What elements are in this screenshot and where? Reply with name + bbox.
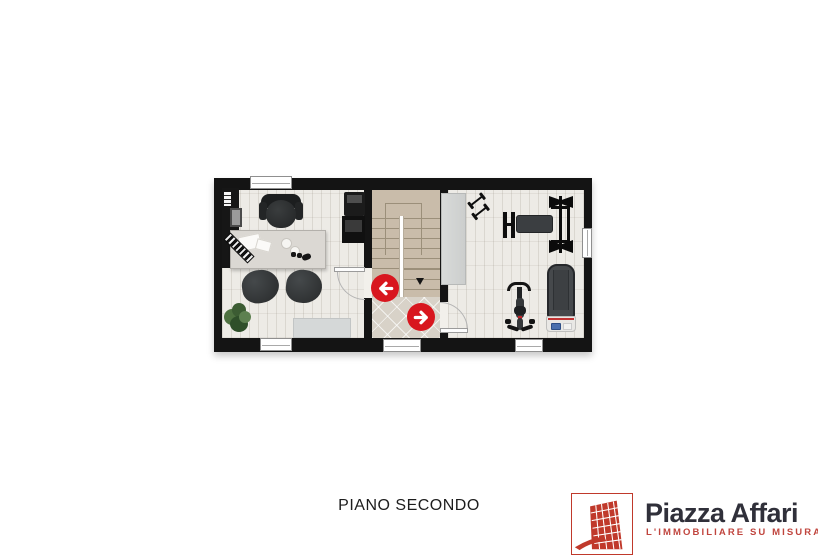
arrow-left-icon (376, 279, 395, 298)
window-top-office (250, 176, 292, 189)
picture-frame-icon (230, 208, 242, 227)
brand-name: Piazza Affari (645, 498, 815, 529)
treadmill-display (551, 323, 561, 330)
arrow-right-icon (412, 308, 431, 327)
stair-direction-arrow-icon (416, 278, 424, 285)
desk (230, 230, 326, 269)
phone-icon (301, 253, 312, 262)
nav-arrow-left-button[interactable] (371, 274, 399, 302)
plant (224, 303, 252, 335)
books-icon (224, 192, 231, 206)
printer (344, 192, 365, 216)
rug (293, 318, 351, 338)
brand-logo (571, 493, 633, 555)
wardrobe-cabinet (441, 193, 466, 285)
office-door-leaf (334, 267, 365, 272)
floor-plan (214, 178, 592, 352)
window-bottom-office (260, 338, 292, 351)
brand-tagline: L'IMMOBILIARE SU MISURA (646, 527, 818, 538)
stair-railing (399, 216, 404, 297)
exercise-bike (505, 282, 535, 334)
nav-arrow-right-button[interactable] (407, 303, 435, 331)
window-bottom-landing (383, 339, 421, 352)
pedal-icon (529, 319, 535, 324)
window-bottom-gym (515, 339, 543, 352)
window-right-gym (582, 228, 592, 258)
bench-press (503, 196, 575, 254)
stair-treads-upper (372, 218, 440, 269)
page-canvas: { "floor_label": "PIANO SECONDO", "brand… (0, 0, 818, 540)
papers-icon (255, 238, 272, 253)
copier (342, 216, 365, 243)
pedal-icon (505, 319, 511, 324)
mouse-icon (291, 252, 296, 257)
red-grid-tower-icon (572, 494, 631, 553)
office-chair (261, 194, 301, 232)
treadmill (546, 264, 576, 333)
floor-plan-title: PIANO SECONDO (338, 497, 480, 515)
gym-door-leaf (440, 328, 468, 333)
